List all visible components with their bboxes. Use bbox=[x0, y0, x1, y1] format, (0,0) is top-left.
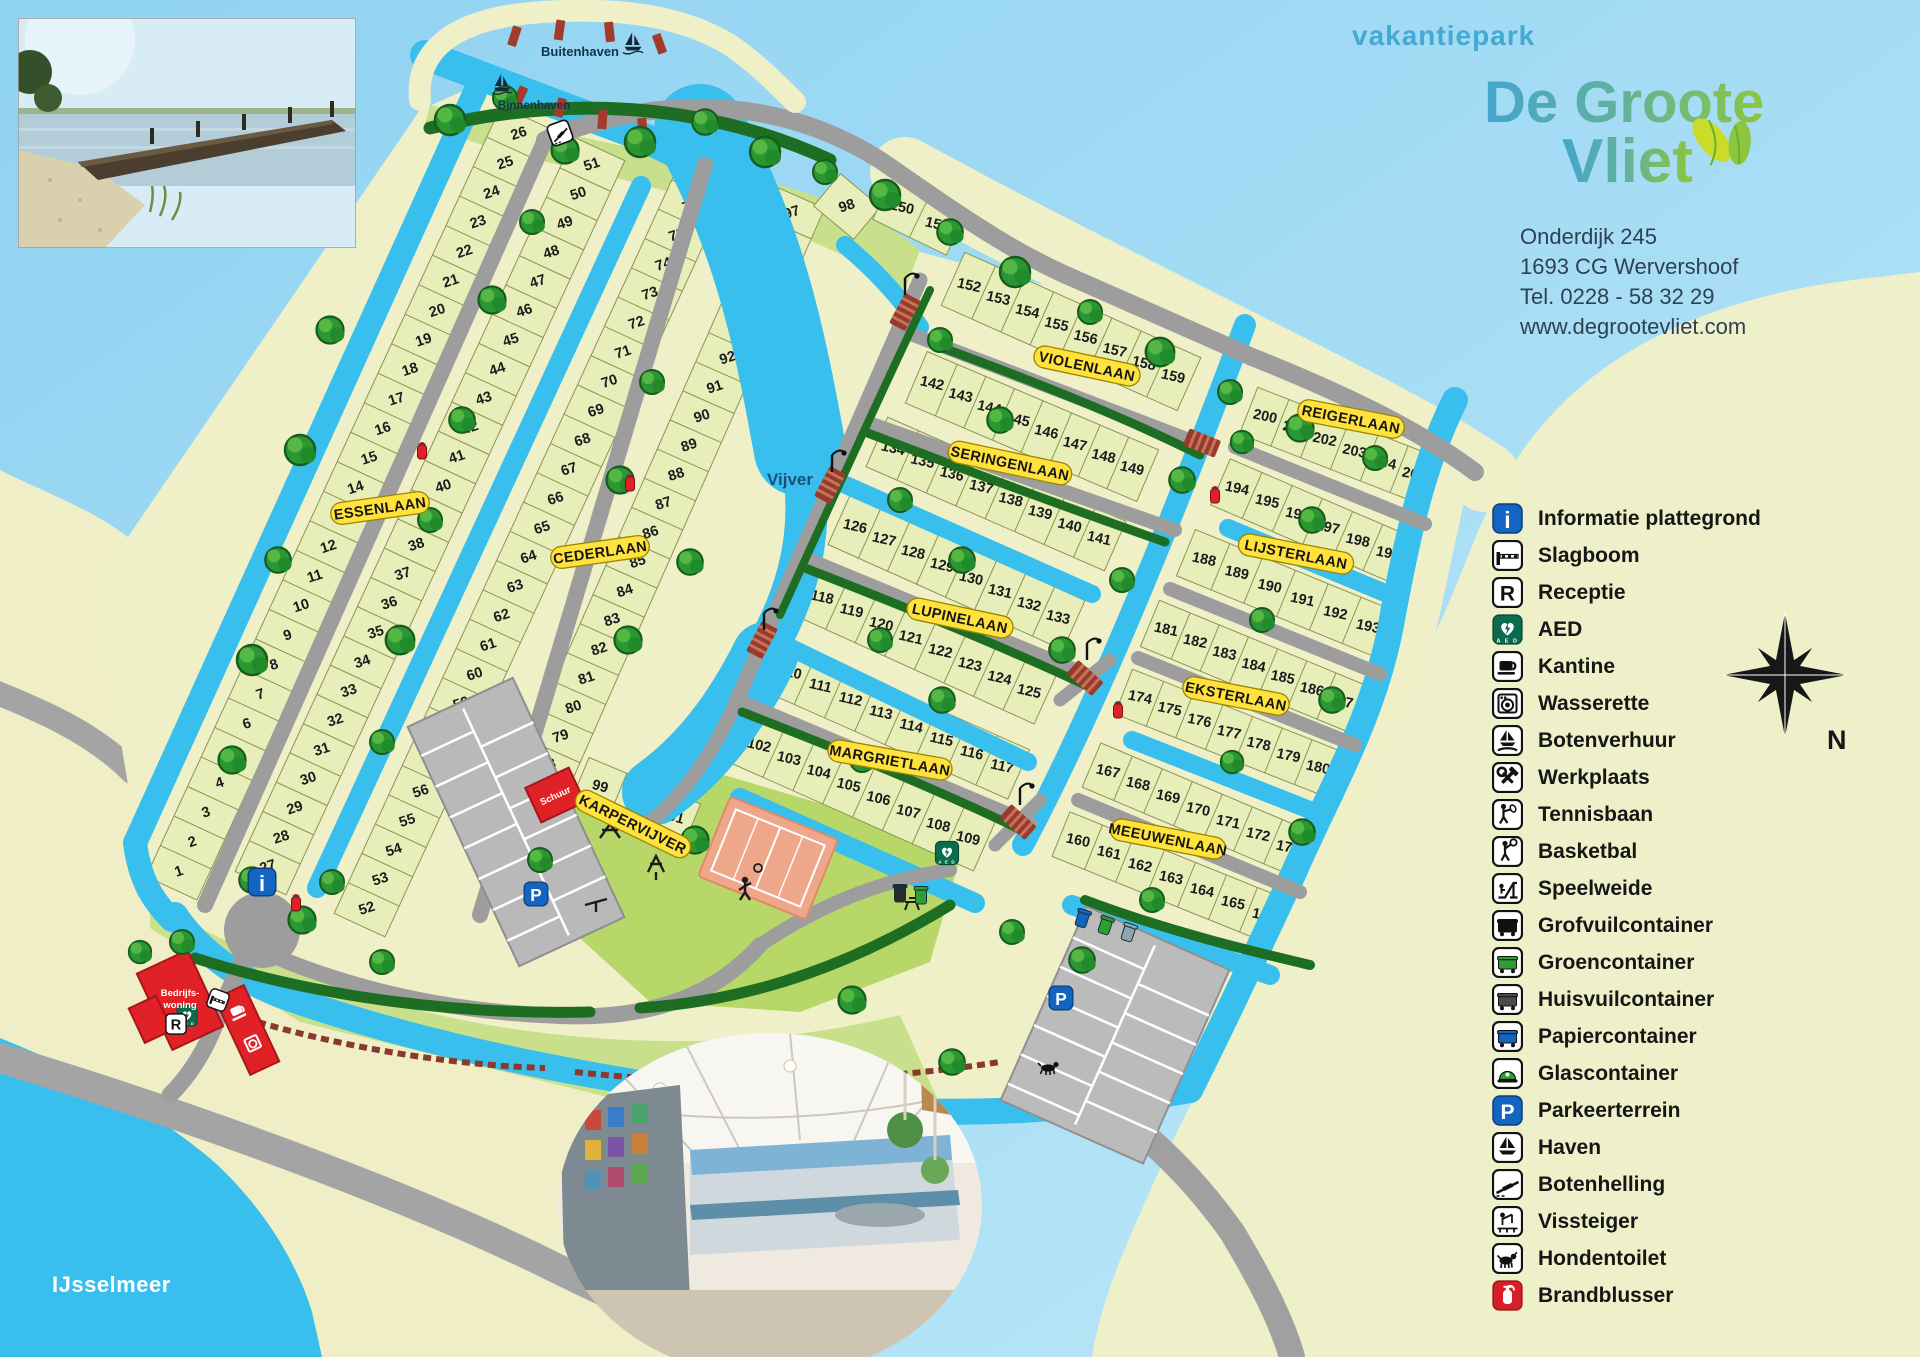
compass-n-label: N bbox=[1827, 725, 1847, 755]
brand-line1: De Groote bbox=[1484, 70, 1764, 135]
basketball-icon bbox=[1492, 836, 1523, 867]
fire-extinguisher-icon bbox=[292, 894, 301, 911]
svg-text:i: i bbox=[1504, 507, 1510, 533]
aed-icon: A E D bbox=[935, 841, 958, 864]
harbor-icon bbox=[1492, 1132, 1523, 1163]
legend-item-label: Haven bbox=[1538, 1136, 1601, 1160]
bulky-waste-icon bbox=[1492, 910, 1523, 941]
legend-item: Basketbal bbox=[1492, 833, 1761, 870]
bedrijfswoning-label2: woning bbox=[162, 1000, 196, 1011]
tree-icon bbox=[937, 219, 963, 245]
tree-icon bbox=[1231, 431, 1254, 454]
legend-item-label: Glascontainer bbox=[1538, 1062, 1678, 1086]
tree-icon bbox=[265, 547, 291, 573]
svg-text:A E D: A E D bbox=[1497, 639, 1519, 645]
svg-text:i: i bbox=[259, 871, 265, 896]
tree-icon bbox=[868, 628, 893, 652]
legend-item: Groencontainer bbox=[1492, 944, 1761, 981]
tree-icon bbox=[435, 105, 466, 135]
svg-text:R: R bbox=[171, 1018, 182, 1034]
legend-item-label: Kantine bbox=[1538, 655, 1615, 679]
parking-icon: P bbox=[524, 882, 548, 906]
tree-icon bbox=[839, 987, 867, 1014]
tree-icon bbox=[1078, 300, 1103, 324]
tree-icon bbox=[677, 549, 703, 575]
tree-icon bbox=[615, 627, 643, 654]
info-icon: i bbox=[1492, 503, 1523, 534]
park-map-page: 1234567891011121314151617181920212223242… bbox=[0, 0, 1920, 1357]
legend-item-label: Grofvuilcontainer bbox=[1538, 914, 1713, 938]
tree-icon bbox=[219, 747, 247, 774]
tree-icon bbox=[1299, 507, 1325, 533]
fire-extinguisher-icon bbox=[1211, 486, 1220, 503]
tree-icon bbox=[888, 488, 913, 512]
tree-icon bbox=[1000, 257, 1031, 287]
legend-item: Haven bbox=[1492, 1129, 1761, 1166]
svg-text:R: R bbox=[1500, 583, 1515, 606]
aed-icon: A E D bbox=[1492, 614, 1523, 645]
tree-icon bbox=[1140, 888, 1165, 912]
binnenhaven-label: Binnenhaven bbox=[498, 100, 570, 112]
tennis-icon bbox=[1492, 799, 1523, 830]
tree-icon bbox=[929, 687, 955, 713]
legend-item-label: Botenhelling bbox=[1538, 1173, 1665, 1197]
bedrijfswoning-label1: Bedrijfs- bbox=[161, 988, 200, 999]
svg-text:P: P bbox=[530, 885, 541, 905]
dog-toilet-icon bbox=[1492, 1243, 1523, 1274]
parking-icon: P bbox=[1492, 1095, 1523, 1126]
legend-item: Botenhelling bbox=[1492, 1166, 1761, 1203]
legend-item-label: Werkplaats bbox=[1538, 766, 1650, 790]
legend-item-label: Informatie plattegrond bbox=[1538, 507, 1761, 531]
tree-icon bbox=[1049, 637, 1075, 663]
vijver-label: Vijver bbox=[767, 470, 813, 489]
legend-item-label: Wasserette bbox=[1538, 692, 1649, 716]
container-icon bbox=[893, 885, 907, 903]
tree-icon bbox=[1319, 687, 1345, 713]
tree-icon bbox=[1069, 947, 1095, 973]
tree-icon bbox=[640, 370, 665, 394]
tree-icon bbox=[449, 407, 475, 433]
legend-item: Hondentoilet bbox=[1492, 1240, 1761, 1277]
legend-item: Wasserette bbox=[1492, 685, 1761, 722]
tree-icon bbox=[370, 950, 395, 974]
tree-icon bbox=[285, 435, 316, 465]
legend-item: Tennisbaan bbox=[1492, 796, 1761, 833]
legend-item-label: Vissteiger bbox=[1538, 1210, 1638, 1234]
tree-icon bbox=[129, 941, 152, 964]
tree-icon bbox=[928, 328, 953, 352]
canteen-icon bbox=[1492, 651, 1523, 682]
tree-icon bbox=[939, 1049, 965, 1075]
tree-icon bbox=[479, 287, 507, 314]
tree-icon bbox=[1000, 920, 1025, 944]
tree-icon bbox=[237, 645, 268, 675]
legend-item-label: Hondentoilet bbox=[1538, 1247, 1666, 1271]
reception-icon: R bbox=[1492, 577, 1523, 608]
laundry-icon bbox=[1492, 688, 1523, 719]
legend-item-label: Brandblusser bbox=[1538, 1284, 1673, 1308]
tree-icon bbox=[1221, 751, 1244, 774]
svg-text:P: P bbox=[1500, 1101, 1514, 1124]
legend-item: Grofvuilcontainer bbox=[1492, 907, 1761, 944]
legend-item-label: Speelweide bbox=[1538, 877, 1652, 901]
fire-extinguisher-icon bbox=[1114, 701, 1123, 718]
legend-item-label: Tennisbaan bbox=[1538, 803, 1653, 827]
svg-text:P: P bbox=[1055, 989, 1066, 1009]
tree-icon bbox=[1110, 568, 1135, 592]
fire-extinguisher-icon bbox=[626, 474, 635, 491]
legend: iInformatie plattegrondSlagboomRReceptie… bbox=[1492, 500, 1761, 1314]
legend-item-label: AED bbox=[1538, 618, 1582, 642]
fire-extinguisher-icon bbox=[1492, 1280, 1523, 1311]
tree-icon bbox=[692, 109, 718, 135]
parking-icon: P bbox=[1049, 986, 1073, 1010]
tree-icon bbox=[1146, 338, 1175, 367]
legend-item: Slagboom bbox=[1492, 537, 1761, 574]
legend-item-label: Slagboom bbox=[1538, 544, 1640, 568]
legend-item-label: Papiercontainer bbox=[1538, 1025, 1697, 1049]
boat-rental-icon bbox=[1492, 725, 1523, 756]
fire-extinguisher-icon bbox=[418, 442, 427, 459]
legend-item-label: Parkeerterrein bbox=[1538, 1099, 1680, 1123]
tree-icon bbox=[1363, 446, 1388, 470]
household-waste-icon bbox=[1492, 984, 1523, 1015]
legend-item: Kantine bbox=[1492, 648, 1761, 685]
legend-item-label: Receptie bbox=[1538, 581, 1626, 605]
reception-icon: R bbox=[166, 1014, 186, 1034]
tree-icon bbox=[370, 730, 395, 754]
legend-item-label: Groencontainer bbox=[1538, 951, 1694, 975]
glass-container-icon bbox=[1492, 1058, 1523, 1089]
legend-item: Huisvuilcontainer bbox=[1492, 981, 1761, 1018]
info-icon: i bbox=[248, 868, 276, 896]
tree-icon bbox=[1289, 819, 1315, 845]
fishing-pier-icon bbox=[1492, 1206, 1523, 1237]
tree-icon bbox=[528, 848, 553, 872]
tree-icon bbox=[386, 626, 415, 655]
tree-icon bbox=[625, 127, 656, 157]
green-container-icon bbox=[1492, 947, 1523, 978]
legend-item-label: Huisvuilcontainer bbox=[1538, 988, 1714, 1012]
ijsselmeer-label: IJsselmeer bbox=[52, 1272, 171, 1298]
lake-photo bbox=[8, 0, 356, 248]
tree-icon bbox=[1218, 380, 1243, 404]
brand-line2: Vliet bbox=[1562, 127, 1693, 196]
legend-item: Botenverhuur bbox=[1492, 722, 1761, 759]
playfield-icon bbox=[1492, 873, 1523, 904]
legend-item: Werkplaats bbox=[1492, 759, 1761, 796]
workshop-icon bbox=[1492, 762, 1523, 793]
legend-item: Papiercontainer bbox=[1492, 1018, 1761, 1055]
tree-icon bbox=[987, 407, 1013, 433]
container-icon bbox=[914, 887, 928, 905]
svg-text:A E D: A E D bbox=[938, 859, 956, 864]
legend-item: Glascontainer bbox=[1492, 1055, 1761, 1092]
tree-icon bbox=[813, 160, 838, 184]
tree-icon bbox=[170, 930, 195, 954]
legend-item: Vissteiger bbox=[1492, 1203, 1761, 1240]
legend-item: Brandblusser bbox=[1492, 1277, 1761, 1314]
tree-icon bbox=[320, 870, 345, 894]
tree-icon bbox=[317, 317, 345, 344]
tree-icon bbox=[520, 210, 545, 234]
legend-item: RReceptie bbox=[1492, 574, 1761, 611]
buitenhaven-label: Buitenhaven bbox=[541, 44, 619, 59]
legend-item: iInformatie plattegrond bbox=[1492, 500, 1761, 537]
tree-icon bbox=[949, 547, 975, 573]
legend-item: A E DAED bbox=[1492, 611, 1761, 648]
legend-item: Speelweide bbox=[1492, 870, 1761, 907]
tree-icon bbox=[750, 137, 781, 167]
paper-container-icon bbox=[1492, 1021, 1523, 1052]
tree-icon bbox=[870, 180, 901, 210]
legend-item-label: Botenverhuur bbox=[1538, 729, 1676, 753]
boat-ramp-icon bbox=[1492, 1169, 1523, 1200]
barrier-icon bbox=[1492, 540, 1523, 571]
tree-icon bbox=[1169, 467, 1195, 493]
tree-icon bbox=[1250, 608, 1275, 632]
legend-item-label: Basketbal bbox=[1538, 840, 1637, 864]
legend-item: PParkeerterrein bbox=[1492, 1092, 1761, 1129]
